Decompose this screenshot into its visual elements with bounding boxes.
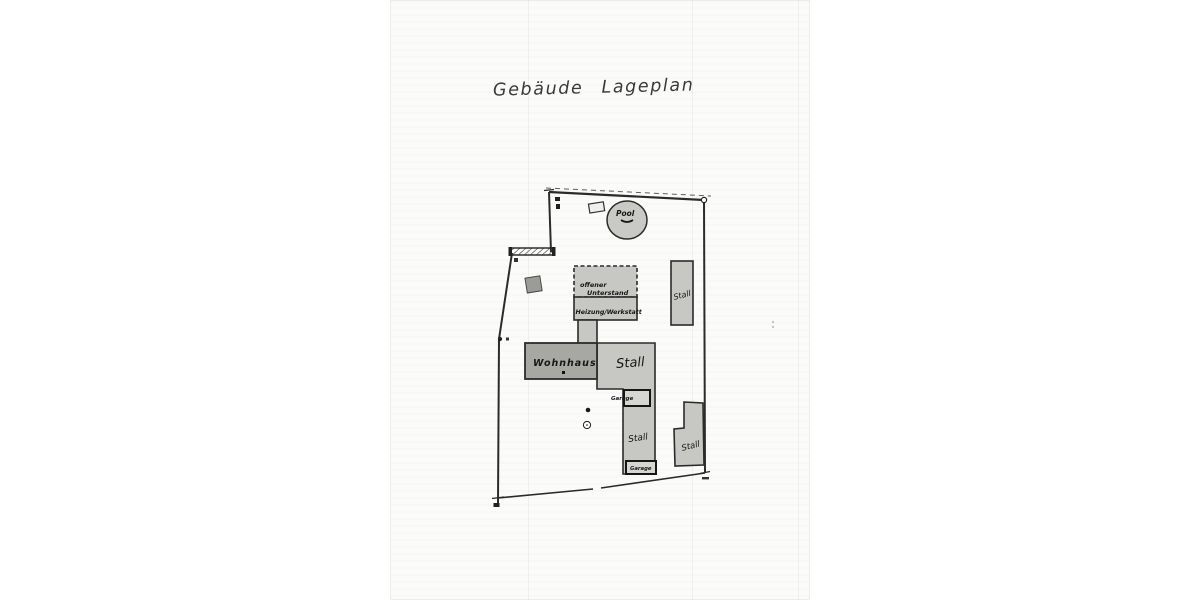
site-plan-drawing: Pool offener Unterstand Heizung/Werkstat…	[0, 0, 1200, 600]
wall-end-cap-west	[509, 247, 513, 256]
corner-marker-topright	[701, 197, 706, 202]
small-square-structure	[525, 276, 542, 293]
corner-marker-left	[498, 337, 502, 341]
corner-glyph-left	[506, 338, 509, 341]
building-label-unterstand: Unterstand	[587, 289, 629, 297]
corner-glyph-topleft-1	[555, 197, 560, 201]
building-label-pool: Pool	[616, 209, 635, 218]
boundary-left-stub	[549, 192, 551, 252]
corner-glyph-bottomright	[702, 477, 709, 479]
building-label-stall-center: Stall	[616, 355, 646, 372]
building-label-offener: offener	[580, 281, 607, 289]
boundary-top	[549, 192, 704, 200]
boundary-right	[704, 200, 705, 473]
boundary-left-lower	[498, 339, 499, 503]
wohnhaus-point-mark	[562, 371, 565, 374]
building-label-wohnhaus: Wohnhaus	[533, 358, 597, 369]
boundary-top-dashed	[546, 188, 711, 196]
corner-glyph-bottomleft	[494, 503, 500, 507]
building-stall-southeast	[674, 402, 704, 466]
wall-corner-mark	[514, 258, 518, 262]
wall-end-cap-east	[552, 247, 556, 256]
boundary-wall-hatched	[511, 248, 554, 255]
building-label-heizung-werkstatt: Heizung/Werkstatt	[576, 308, 643, 316]
yard-circle-mark-dot	[586, 424, 588, 426]
small-shed-rect	[588, 202, 604, 213]
boundary-bottom-west	[498, 489, 593, 498]
corner-tick-topleft	[544, 190, 554, 191]
building-connector	[578, 320, 597, 344]
boundary-bottom-east	[601, 473, 705, 488]
yard-point-mark	[586, 408, 591, 413]
building-label-garage-upper: Garage	[611, 396, 634, 402]
boundary-left-slant	[499, 253, 512, 339]
building-label-garage-lower: Garage	[630, 466, 652, 472]
corner-glyph-topleft-2	[556, 204, 560, 209]
pool-circle	[607, 201, 647, 239]
